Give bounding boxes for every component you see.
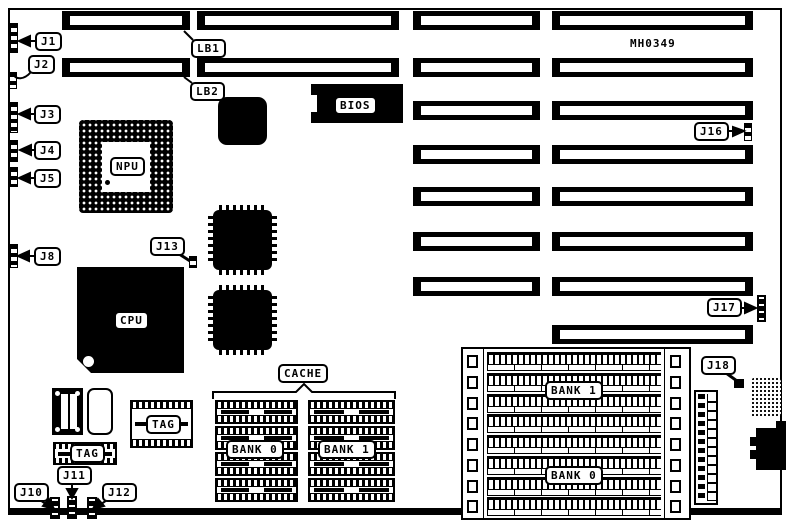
memory-bank0-label: BANK 0 (545, 466, 603, 485)
part-number: MH0349 (630, 37, 676, 50)
expansion-slot-segment (62, 11, 190, 30)
cache-bank0-label: BANK 0 (226, 440, 284, 459)
expansion-slot-segment (413, 232, 540, 251)
cache-socket (215, 400, 298, 424)
jumper-j4 (10, 140, 18, 162)
callout-j2: J2 (28, 55, 55, 74)
expansion-slot-segment (413, 145, 540, 164)
expansion-slot-segment (552, 101, 753, 120)
jumper-j13 (189, 256, 197, 268)
expansion-slot-segment (413, 277, 540, 296)
jumper-j16 (744, 123, 752, 141)
callout-j17: J17 (707, 298, 742, 317)
expansion-slot-segment (413, 58, 540, 77)
callout-j3: J3 (34, 105, 61, 124)
motherboard-diagram: NPU CPU BIOS TAG TAG CACHE BANK 0 (0, 0, 791, 527)
jumper-j10 (50, 497, 60, 519)
keyboard-connector-pin (750, 450, 757, 459)
expansion-slot-segment (413, 101, 540, 120)
chipset-chip (218, 97, 267, 145)
jumper-j18 (734, 379, 744, 388)
callout-j5: J5 (34, 169, 61, 188)
keyboard-connector-pin (750, 437, 757, 446)
qfp-chip (208, 205, 277, 275)
cpu-pin1-marker (83, 356, 94, 367)
expansion-slot-segment (552, 145, 753, 164)
expansion-slot-segment (197, 11, 399, 30)
cache-bank1-label: BANK 1 (318, 440, 376, 459)
keyboard-connector (756, 428, 786, 470)
npu-label: NPU (110, 157, 145, 176)
expansion-slot-segment (197, 58, 399, 77)
expansion-slot-segment (62, 58, 190, 77)
expansion-slot-segment (413, 11, 540, 30)
bios-chip-notch (311, 95, 317, 112)
callout-j8: J8 (34, 247, 61, 266)
power-header (694, 390, 718, 505)
jumper-j3 (10, 102, 18, 133)
jumper-j8 (10, 244, 18, 268)
crystal-oscillator (87, 388, 113, 435)
jumper-j1 (10, 23, 18, 53)
callout-j18: J18 (701, 356, 736, 375)
cache-socket (308, 478, 395, 502)
tag-label: TAG (146, 415, 181, 434)
expansion-slot-segment (552, 325, 753, 344)
jumper-j17 (757, 295, 766, 322)
callout-j16: J16 (694, 122, 729, 141)
callout-lb2: LB2 (190, 82, 225, 101)
qfp-chip (208, 285, 277, 355)
expansion-slot-segment (552, 277, 753, 296)
expansion-slot-segment (552, 11, 753, 30)
jumper-j5 (10, 167, 18, 187)
callout-lb1: LB1 (191, 39, 226, 58)
callout-j10: J10 (14, 483, 49, 502)
expansion-slot-segment (413, 187, 540, 206)
callout-j4: J4 (34, 141, 61, 160)
tag-label: TAG (70, 444, 105, 463)
npu-pin1-marker (105, 180, 110, 185)
piezo-speaker (751, 377, 781, 418)
bios-label: BIOS (334, 96, 377, 115)
callout-j13: J13 (150, 237, 185, 256)
callout-j12: J12 (102, 483, 137, 502)
cache-title-label: CACHE (278, 364, 328, 383)
expansion-slot-segment (552, 58, 753, 77)
expansion-slot-segment (552, 232, 753, 251)
oscillator-socket (52, 388, 83, 435)
jumper-j12 (87, 497, 97, 519)
jumper-j11 (67, 496, 77, 519)
jumper-j2 (9, 72, 17, 89)
cpu-label: CPU (114, 311, 149, 330)
simm-socket-block (461, 347, 691, 520)
callout-j11: J11 (57, 466, 92, 485)
memory-bank1-label: BANK 1 (545, 381, 603, 400)
cache-socket (215, 478, 298, 502)
callout-j1: J1 (35, 32, 62, 51)
keyboard-connector-step (776, 421, 786, 429)
cache-socket (308, 400, 395, 424)
expansion-slot-segment (552, 187, 753, 206)
